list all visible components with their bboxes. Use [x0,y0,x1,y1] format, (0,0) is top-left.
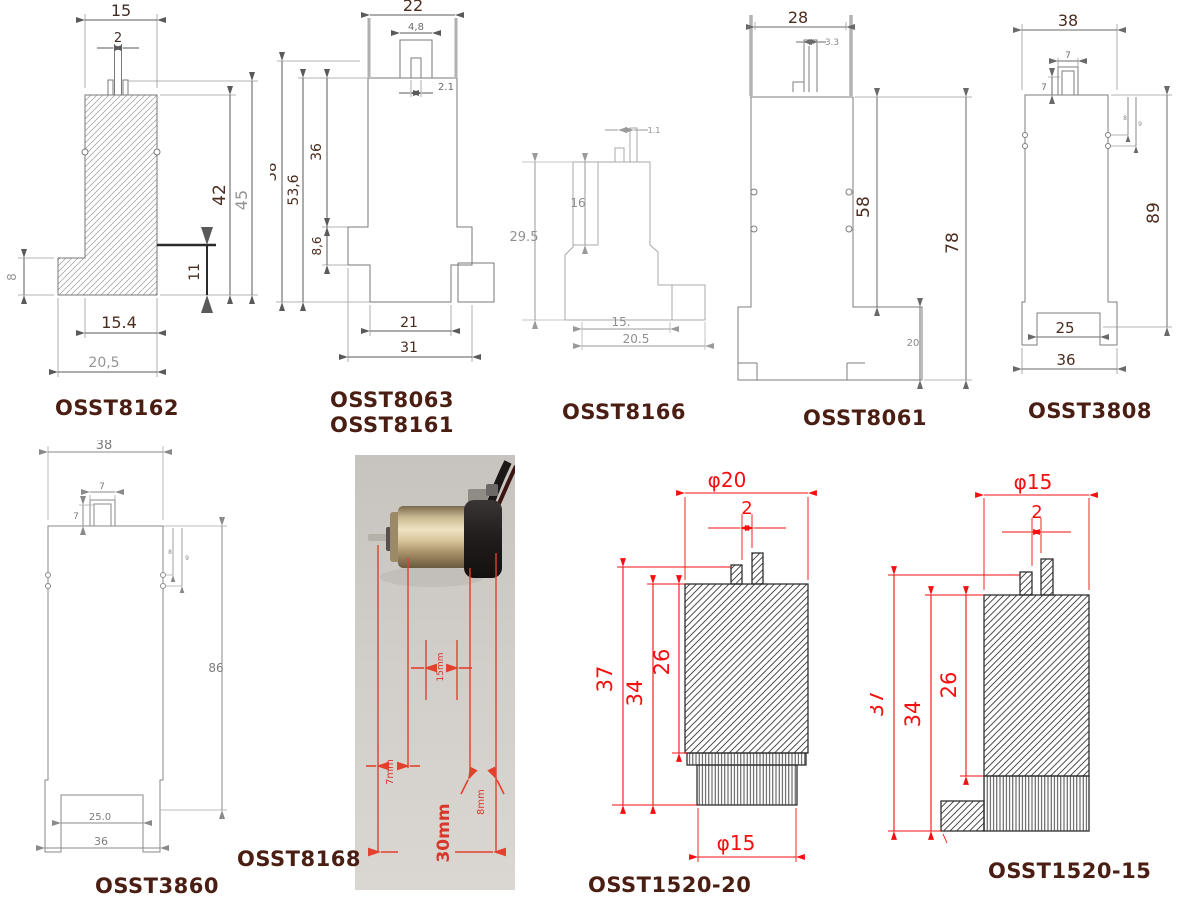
dim-top-width: 38 [1058,11,1078,30]
dim-body-height: 26 [650,649,674,676]
part-outline-3808 [1022,67,1117,345]
dimension-lines-8063 [282,15,472,357]
dim-top-width: 15 [111,1,131,20]
dim-total-height: 58 [270,162,280,181]
dim-height2: 34 [623,680,647,707]
dim-total-height: 37 [870,691,888,718]
dim-pin-width: 2 [1031,502,1042,523]
dim-total-height: 29.5 [510,230,538,245]
drawing-osst8162: 15 2 42 45 11 8 15.4 20,5 [0,0,270,395]
model-label-osst3860: OSST3860 [95,874,219,898]
dim-pin-width: 7 [99,482,105,492]
dim-top-diameter: φ20 [708,468,747,492]
drawing-osst1520-20: φ20 2 37 34 26 φ15 [580,440,860,880]
model-label-osst3808: OSST3808 [1028,399,1152,423]
dim-pin-width: 1.1 [648,126,661,135]
dimension-lines-3808 [1022,30,1167,369]
drawing-osst8063: 22 4,8 2.1 58 53,6 36 8,6 21 31 [270,0,510,390]
model-label-osst8063-line1: OSST8063 [330,388,454,413]
part-outline-8166 [565,128,705,320]
dim-pin-width: 3.3 [825,38,839,48]
dim-pin-width: 2 [114,31,122,46]
dim-side-outer: 9 [185,555,189,562]
dim-pin: 7mm [385,759,396,785]
dim-top-width: 22 [403,0,423,15]
dim-total-length: 30mm [434,803,454,862]
model-label-osst8061: OSST8061 [803,406,927,430]
dimension-lines-3860 [45,452,222,848]
dim-step-height: 11 [187,263,203,281]
drawing-osst1520-15: φ15 2 37 34 26 [870,440,1200,860]
drawing-osst3808: 38 7 7 8 9 89 25 36 [990,0,1200,395]
part-outline-1520-15 [941,559,1089,831]
part-outline-3860 [45,500,166,852]
dim-stroke: 15mm [436,653,446,682]
dim-top-width: 28 [788,8,808,27]
dim-pin-width: 7 [1065,51,1071,61]
dim-pin-height: 7 [73,512,79,522]
dim-top-diameter: φ15 [1014,470,1053,494]
dim-base-width: 20.5 [623,332,650,346]
dim-total-height: 45 [232,190,251,210]
connector-tab-2 [486,484,498,496]
coil-body [398,506,472,568]
part-outline-8162 [58,44,216,295]
dim-outlet: 8mm [476,789,487,815]
dim-base-width: 36 [94,835,108,848]
datasheet-canvas: 15 2 42 45 11 8 15.4 20,5 22 4,8 2.1 58 … [0,0,1200,900]
dim-base-width: 36 [1056,351,1075,369]
part-outline-8063 [348,18,494,302]
dim-slot-width: 4,8 [408,22,424,33]
dim-total-height: 89 [1144,202,1164,224]
dim-top-width: 38 [96,440,113,453]
dim-total-height: 37 [593,666,617,693]
extension-lines-3808 [1022,24,1172,374]
dim-lower-width: 21 [400,315,418,331]
model-label-osst8161-line2: OSST8161 [330,413,454,438]
dim-base-width: 20,5 [88,355,119,371]
model-label-osst8168: OSST8168 [237,847,361,871]
dim-body-height: 26 [937,672,961,699]
model-label-osst1520-20: OSST1520-20 [588,873,751,897]
dim-lower-width: 15. [611,315,630,329]
dim-base-height: 20 [907,338,920,349]
dim-notch-width: 25 [1055,319,1074,337]
dim-base-width: 31 [400,340,418,356]
dim-body-height: 58 [854,196,874,218]
dim-slot-depth: 16 [570,196,585,210]
model-label-osst8063: OSST8063 OSST8161 [330,388,454,438]
dim-step-height: 8,6 [310,236,324,255]
model-label-osst8166: OSST8166 [562,400,686,424]
dim-flange-height: 8 [5,273,19,281]
drawing-osst3860: 38 7 7 8 9 86 25.0 36 [20,440,240,875]
dim-bottom-diameter: φ15 [717,831,756,855]
dim-pin-height: 7 [1041,83,1047,93]
dim-pin-width: 2.1 [438,82,454,93]
dim-upper-height: 36 [309,143,325,161]
dim-side-inner: 8 [1123,115,1127,122]
extension-lines-8063 [276,61,472,362]
dim-body-height: 42 [210,184,230,206]
dim-notch-width: 25.0 [89,812,111,823]
model-label-osst1520-15: OSST1520-15 [988,859,1151,883]
dim-side-outer: 9 [1138,121,1142,128]
drawing-osst8061: 28 3.3 58 78 20 [730,0,990,400]
dim-height2: 34 [901,701,925,728]
dim-height2: 53,6 [286,174,302,205]
dim-side-inner: 8 [168,549,172,556]
dim-pin-width: 2 [741,498,752,519]
dim-body-width: 15.4 [101,313,137,332]
photo-osst8168: 15mm 7mm 8mm 30mm [355,455,515,890]
dim-total-height: 78 [943,232,963,254]
model-label-osst8162: OSST8162 [55,396,179,420]
drawing-osst8166: 16 29.5 1.1 15. 20.5 [510,100,730,360]
part-outline-1520-20 [685,553,808,805]
part-outline-8061 [738,15,922,380]
extension-lines-3860 [48,446,227,810]
dim-body-height: 86 [208,661,223,675]
